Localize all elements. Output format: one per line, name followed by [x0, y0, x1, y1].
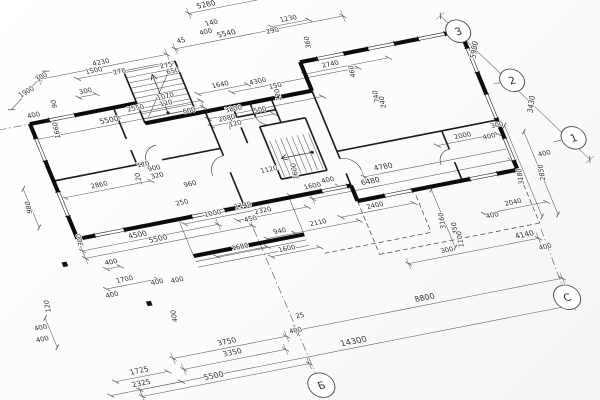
thin-line [133, 83, 184, 93]
thin-line [131, 78, 182, 88]
dimension-line [296, 278, 563, 330]
dimension-label: 400 [33, 323, 49, 333]
interior-wall [442, 131, 450, 149]
dimension-tick [164, 369, 171, 375]
dimension-label: 90 [49, 100, 59, 108]
extension-line [406, 258, 411, 269]
dimension-label: 2850 [536, 164, 547, 180]
dimension-tick [181, 221, 188, 227]
window-gap [470, 174, 497, 179]
dimension-label: 240 [377, 96, 388, 108]
interior-wall [54, 163, 146, 181]
dimension-line [409, 238, 539, 263]
window-gap [505, 138, 514, 160]
dimension-tick [319, 94, 326, 100]
extension-line [536, 233, 541, 244]
dimension-tick [178, 379, 185, 385]
stair-arrow-line [281, 152, 312, 158]
dimension-label: 120 [42, 300, 53, 312]
interior-wall [260, 118, 306, 127]
thin-line [289, 198, 304, 235]
dimension-label: 400 [103, 257, 119, 267]
dimension-label: 2325 [130, 377, 152, 389]
door-arc [206, 156, 230, 176]
dimension-label: 500 [252, 105, 268, 115]
dimension-label: 2110 [308, 217, 328, 228]
dimension-label: 120 [227, 119, 243, 129]
dimension-tick [338, 214, 345, 220]
dimension-label: 400 [26, 110, 42, 120]
dimension-label: 400 [35, 334, 51, 344]
dimension-label: 400 [537, 242, 553, 252]
dimension-tick [74, 76, 81, 82]
dimension-label: 1120 [259, 164, 279, 175]
thin-line [308, 133, 323, 169]
dimension-tick [194, 91, 201, 97]
window-gap [418, 34, 444, 39]
dimension-label: 3430 [525, 94, 537, 114]
dimension-label: 4140 [513, 228, 535, 240]
extension-line [165, 49, 170, 60]
dimension-label: 140 [204, 18, 220, 28]
dimension-label: 320 [149, 171, 165, 181]
dimension-tick [356, 218, 363, 224]
window-gap [58, 192, 68, 216]
dimension-label: 5500 [202, 370, 225, 382]
window-gap [318, 54, 344, 59]
dimension-line [295, 221, 359, 234]
dimension-label: 960 [182, 179, 198, 189]
dimension-label: 1140 [233, 200, 253, 211]
terrace-dashed-line [416, 196, 431, 233]
dimension-tick [213, 254, 220, 260]
dimension-label: 400 [288, 326, 304, 336]
extension-line [171, 353, 176, 364]
interior-wall [312, 91, 340, 159]
door-arc [340, 156, 362, 174]
dimension-label: 400 [149, 277, 165, 287]
plan-group: 1900300300150042302702756501404005280455… [0, 0, 600, 400]
dimension-label: 400 [537, 149, 553, 159]
dimension-tick [268, 254, 275, 260]
dimension-label: 400 [485, 210, 501, 220]
window-gap [486, 94, 496, 118]
dimension-label: 250 [174, 198, 190, 208]
dimension-tick [107, 393, 114, 399]
axis-dashdot-line [553, 140, 563, 142]
axis-dashdot-line [0, 124, 30, 133]
dimension-label: 300 [34, 71, 50, 84]
dimension-label: 360 [302, 36, 313, 48]
dimension-tick [93, 91, 100, 97]
window-gap [95, 230, 124, 236]
dimension-tick [234, 218, 241, 224]
dimension-tick [385, 55, 392, 61]
extension-line [181, 364, 186, 375]
thin-line [303, 134, 318, 170]
dimension-label: 3350 [221, 346, 243, 358]
dimension-tick [555, 212, 562, 218]
dimension-tick [410, 200, 417, 206]
floor-plan-svg: 1900300300150042302702756501404005280455… [0, 0, 600, 400]
dimension-label: 1660 [51, 122, 63, 138]
dimension-label: 1100 [455, 231, 466, 247]
exterior-wall [351, 185, 357, 201]
dimension-label: 4780 [372, 161, 394, 173]
window-gap [385, 190, 412, 195]
extension-line [186, 8, 191, 19]
dimension-label: 4300 [248, 76, 268, 87]
dimension-label: 940 [272, 226, 288, 236]
extension-line [173, 43, 178, 54]
extension-line [283, 344, 288, 355]
dimension-label: 1725 [128, 365, 150, 377]
window-gap [368, 44, 394, 49]
dimension-label: 8800 [413, 292, 436, 304]
dimension-label: 400 [169, 310, 180, 322]
interior-wall [337, 120, 497, 151]
dimension-label: 3160 [437, 213, 448, 229]
dimension-label: 400 [169, 275, 185, 285]
dimension-tick [8, 108, 16, 111]
column-marker [62, 262, 69, 268]
exterior-wall [30, 103, 137, 124]
dimension-label: 120 [273, 89, 284, 101]
dimension-tick [434, 143, 441, 149]
dimension-label: 290 [265, 26, 281, 36]
dimension-label: 120 [158, 98, 174, 108]
dimension-tick [112, 379, 119, 385]
dimension-label: 5980 [468, 40, 480, 60]
dimension-label: 980 [23, 201, 34, 213]
dimension-label: 1900 [17, 85, 36, 100]
column-marker [146, 301, 153, 307]
extension-line [284, 331, 289, 342]
dimension-label: 400 [104, 290, 120, 300]
dimension-tick [197, 98, 204, 104]
interior-wall [113, 108, 126, 139]
dimension-label: 45 [175, 36, 186, 45]
dimension-label: 120 [133, 173, 144, 185]
dimension-label: 300 [78, 86, 94, 96]
dimension-tick [305, 17, 312, 23]
dimension-tick [228, 90, 235, 96]
terrace-dashed-line [325, 232, 432, 253]
dimension-tick [36, 225, 43, 231]
dimension-tick [520, 129, 527, 135]
dimension-tick [316, 244, 323, 250]
dimension-line [107, 266, 121, 269]
dimension-label: 3180 [515, 169, 526, 185]
dimension-label: 2040 [503, 197, 523, 208]
dimension-label: 400 [481, 132, 497, 142]
dimension-tick [20, 186, 27, 192]
blueprint-photo: 1900300300150042302702756501404005280455… [0, 0, 600, 400]
dimension-line [45, 318, 57, 347]
dimension-tick [264, 244, 271, 250]
dimension-label: 400 [320, 175, 336, 185]
extension-line [216, 219, 221, 230]
dimension-label: 1700 [115, 274, 135, 285]
interior-wall [455, 162, 463, 180]
dimension-label: 2860 [89, 180, 109, 191]
dimension-label: 460 [347, 65, 358, 77]
window-gap [36, 139, 45, 161]
interior-wall [162, 148, 220, 159]
dimension-label: 300 [439, 245, 455, 255]
dimension-label: 6480 [359, 175, 381, 187]
dimension-tick [304, 204, 311, 210]
dimension-tick [539, 214, 546, 220]
thin-line [297, 135, 312, 171]
axis-dashdot-line [539, 229, 564, 285]
extension-line [83, 253, 88, 264]
dimension-label: 3750 [216, 335, 238, 347]
dimension-tick [42, 315, 49, 321]
dimension-line [142, 364, 309, 397]
dimension-tick [543, 199, 550, 205]
dimension-tick [54, 344, 61, 350]
dimension-label: 400 [198, 27, 214, 37]
dimension-label: 25 [294, 311, 305, 320]
interior-wall [241, 127, 247, 143]
dimension-label: 5280 [195, 0, 217, 10]
exterior-wall [300, 62, 312, 91]
extension-line [341, 10, 346, 21]
